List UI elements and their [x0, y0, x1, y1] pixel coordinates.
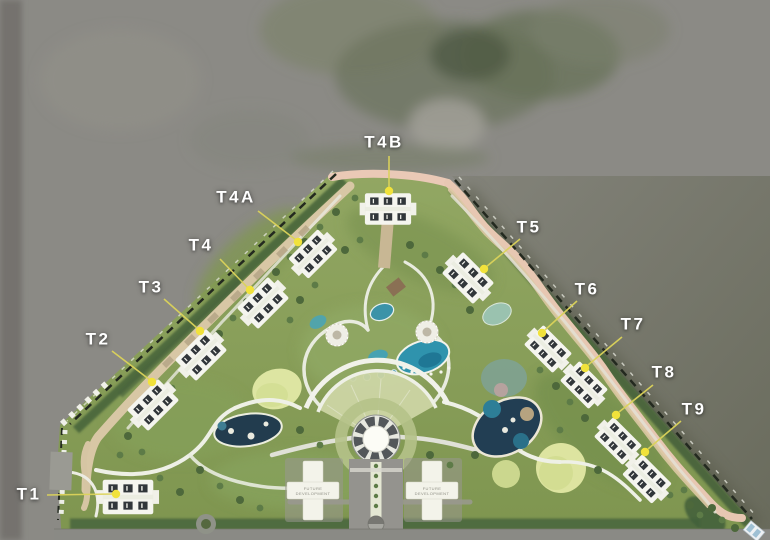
marker-t3[interactable] — [196, 327, 204, 335]
tower-label-t8[interactable]: T8 — [652, 364, 677, 381]
tower-label-t4a[interactable]: T4A — [216, 189, 256, 206]
future-development-pad-left: FUTURE DEVELOPMENT — [285, 458, 343, 522]
marker-t5[interactable] — [480, 265, 488, 273]
tower-label-t3[interactable]: T3 — [139, 279, 164, 296]
leader-t1 — [47, 494, 113, 495]
building-t1 — [97, 480, 159, 515]
marker-t7[interactable] — [581, 364, 589, 372]
marker-t8[interactable] — [612, 411, 620, 419]
building-t4b — [360, 193, 417, 225]
marker-t4a[interactable] — [294, 238, 302, 246]
future-development-pad-right: FUTURE DEVELOPMENT — [404, 458, 462, 522]
tower-label-t7[interactable]: T7 — [621, 316, 646, 333]
tower-label-t4[interactable]: T4 — [189, 237, 214, 254]
tower-label-t1[interactable]: T1 — [17, 486, 42, 503]
tower-label-t6[interactable]: T6 — [575, 281, 600, 298]
site-plan-graphic: FUTURE DEVELOPMENT FUTURE DEVELOPMENT — [0, 0, 770, 540]
future-pad-text: DEVELOPMENT — [415, 491, 450, 496]
marker-t6[interactable] — [538, 329, 546, 337]
tower-label-t9[interactable]: T9 — [682, 401, 707, 418]
marker-t1[interactable] — [112, 490, 120, 498]
marker-t4b[interactable] — [385, 187, 393, 195]
tower-label-t2[interactable]: T2 — [86, 331, 111, 348]
marker-t4[interactable] — [246, 286, 254, 294]
masterplan-map: FUTURE DEVELOPMENT FUTURE DEVELOPMENT — [0, 0, 770, 540]
future-pad-text: DEVELOPMENT — [296, 491, 331, 496]
tower-label-t5[interactable]: T5 — [517, 219, 542, 236]
marker-t2[interactable] — [148, 378, 156, 386]
tower-label-t4b[interactable]: T4B — [364, 134, 404, 151]
marker-t9[interactable] — [641, 448, 649, 456]
boulevard — [349, 459, 403, 540]
